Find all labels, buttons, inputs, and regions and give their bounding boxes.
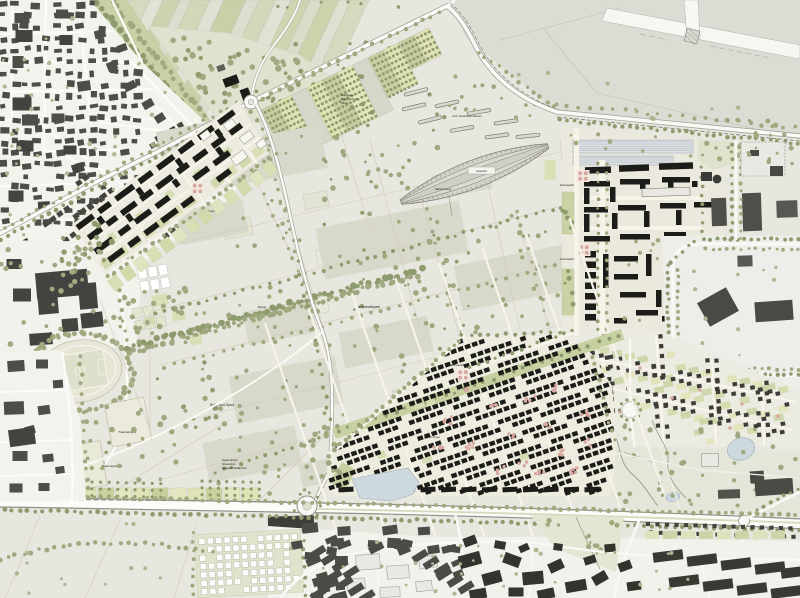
svg-text:grüner Anger: grüner Anger (424, 435, 440, 439)
svg-text:Entreeplatz: Entreeplatz (560, 257, 574, 261)
svg-text:Aussicht: Aussicht (476, 169, 487, 173)
svg-text:vorh. Heckenstrukturen: vorh. Heckenstrukturen (452, 114, 482, 118)
svg-text:Obst: Obst (341, 101, 348, 105)
svg-text:Ausgleichsflächen: Ausgleichsflächen (222, 466, 247, 470)
svg-text:Naherholung: Naherholung (435, 187, 452, 191)
svg-text:Entreeplatz: Entreeplatz (560, 183, 574, 187)
svg-text:Biotop: Biotop (258, 305, 267, 309)
svg-text:Landschaftspark: Landschaftspark (356, 305, 381, 309)
svg-text:Entreeplatz: Entreeplatz (451, 363, 466, 367)
